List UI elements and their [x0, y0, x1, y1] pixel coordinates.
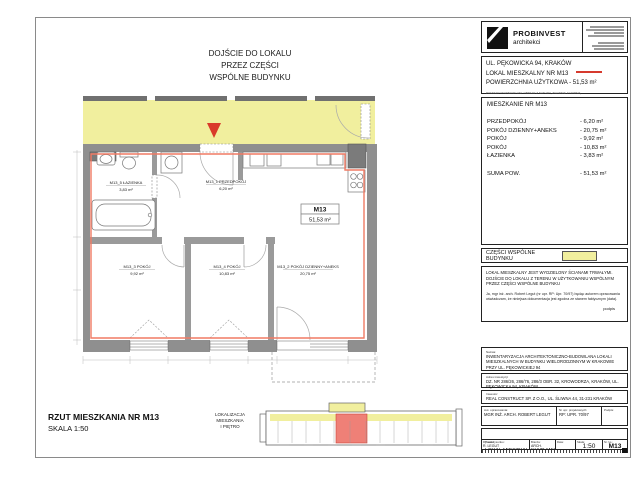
project-area: POWIERZCHNIA UŻYTKOWA - 51,53 m²: [486, 79, 623, 89]
note-line-3: WSPÓLNE BUDYNKU: [150, 72, 350, 84]
project-fineprint: POMIARY POWIERZCHNI: OBMIAR Z NATURY, ZG…: [486, 91, 623, 95]
license-cell: Nr upr. projektowych: RP: Upr. 70/97: [556, 407, 601, 425]
field-drawn-by: Rysował: R. LEGUT: [482, 440, 530, 449]
program-rows: PRZEDPOKÓJ- 6,20 m² POKÓJ DZIENNY+ANEKS-…: [487, 118, 622, 161]
signature-label: podpis: [486, 306, 623, 311]
titleblock-name-box: Nazwa: INWENTARYZACJA ARCHITEKTONICZNO-B…: [481, 347, 628, 371]
drawing-scale: SKALA 1:50: [48, 424, 159, 433]
program-row: PRZEDPOKÓJ- 6,20 m²: [487, 118, 622, 127]
locator-label: LOKALIZACJA MIESZKANIA I PIĘTRO: [204, 412, 256, 430]
corridor-access-note: DOJŚCIE DO LOKALU PRZEZ CZĘŚCI WSPÓLNE B…: [150, 48, 350, 84]
author-name: mgr inż. arch. Robert Legut: [484, 412, 554, 417]
investment-address: DZ. NR 286/26, 286/76, 286/3 OBR. 32, KR…: [486, 379, 623, 390]
titleblock-investor-box: Inwestor: REAL CONSTRUCT SP. Z O.O., UL.…: [481, 390, 628, 404]
probinvest-logo-icon: [487, 27, 508, 49]
unit-boundary-key-icon: [576, 71, 602, 73]
program-sum-row: SUMA POW.- 51,53 m²: [487, 170, 622, 179]
titleblock-project-box: UL. PĘKOWICKA 94, KRAKÓW LOKAL MIESZKALN…: [481, 56, 628, 94]
drawing-name-cell: Treść rysunku: LOKAL MIESZKALNY NR M13: [482, 429, 627, 440]
titleblock-statement-box: LOKAL MIESZKALNY JEST WYDZIELONY ŚCIANAM…: [481, 266, 628, 322]
investor-name: REAL CONSTRUCT SP. Z O.O., UL. ŚLIWNA 44…: [486, 396, 623, 401]
divider: [582, 22, 583, 52]
note-line-1: DOJŚCIE DO LOKALU: [150, 48, 350, 60]
mini-logo-icon: [622, 448, 627, 453]
copyright-strip: [482, 449, 627, 453]
field-scale: Skala: 1:50: [576, 440, 603, 449]
common-statement: LOKAL MIESZKALNY JEST WYDZIELONY ŚCIANAM…: [486, 270, 623, 287]
contact-info-lines: [586, 25, 624, 50]
license-number: RP: Upr. 70/97: [559, 412, 599, 417]
program-row: POKÓJ- 10,83 m²: [487, 144, 622, 153]
titleblock-address-box: Adres inwestycji: DZ. NR 286/26, 286/76,…: [481, 373, 628, 388]
titleblock-logo-box: PROBINVEST architekci: [481, 21, 628, 53]
titleblock-program-box: MIESZKANIE NR M13 PRZEDPOKÓJ- 6,20 m² PO…: [481, 97, 628, 245]
drawing-legend: RZUT MIESZKANIA NR M13 SKALA 1:50: [48, 412, 159, 433]
program-header: MIESZKANIE NR M13: [487, 102, 622, 108]
author-cell: Aut. opracowania: mgr inż. arch. Robert …: [482, 407, 556, 425]
field-date: Data:: [556, 440, 576, 449]
brand-name: PROBINVEST: [513, 29, 566, 38]
titleblock-common-box: CZĘŚCI WSPÓLNE BUDYNKU: [481, 248, 628, 263]
drawing-sheet: { "plan": { "corridor_note": ["DOJŚCIE D…: [0, 0, 640, 480]
titleblock-author-row: Aut. opracowania: mgr inż. arch. Robert …: [481, 406, 628, 426]
field-discipline: Branża: ARCH.: [530, 440, 556, 449]
program-row: POKÓJ- 9,92 m²: [487, 135, 622, 144]
titleblock-drawing-box: Treść rysunku: LOKAL MIESZKALNY NR M13 R…: [481, 428, 628, 453]
program-row: ŁAZIENKA- 3,83 m²: [487, 152, 622, 161]
program-row: POKÓJ DZIENNY+ANEKS- 20,75 m²: [487, 127, 622, 136]
common-area-color-swatch: [562, 251, 597, 261]
drawing-fields: Rysował: R. LEGUT Branża: ARCH. Data: Sk…: [482, 440, 627, 449]
note-line-2: PRZEZ CZĘŚCI: [150, 60, 350, 72]
signature-cell: Podpis:: [601, 407, 627, 425]
project-name: INWENTARYZACJA ARCHITEKTONICZNO-BUDOWLAN…: [486, 354, 623, 370]
author-declaration: Ja, mgr inż. arch. Robert Legut (nr upr.…: [486, 292, 623, 302]
common-header: CZĘŚCI WSPÓLNE BUDYNKU: [486, 250, 562, 262]
project-address: UL. PĘKOWICKA 94, KRAKÓW: [486, 60, 623, 70]
drawing-title: RZUT MIESZKANIA NR M13: [48, 412, 159, 422]
brand-subtitle: architekci: [513, 39, 540, 46]
project-unit: LOKAL MIESZKALNY NR M13: [486, 70, 623, 80]
